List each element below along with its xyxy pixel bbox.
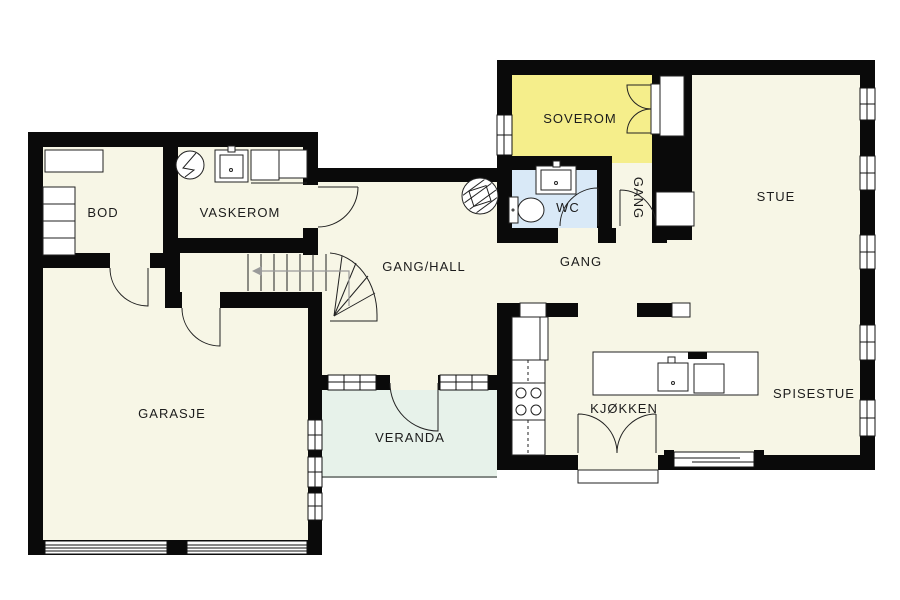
opening-veranda-door [390, 375, 438, 390]
label-garasje: GARASJE [138, 406, 206, 421]
window [497, 115, 512, 155]
window [664, 450, 764, 470]
label-gang-vertical: GANG [631, 177, 646, 219]
label-wc: WC [556, 200, 580, 215]
washer-dryer-icon [251, 150, 307, 183]
door-stoop [578, 470, 658, 483]
opening-bod-garage [110, 253, 150, 268]
cased-opening [672, 303, 690, 317]
closet-niche [660, 76, 684, 136]
label-kjokken: KJØKKEN [590, 401, 658, 416]
wc-sink-icon [536, 161, 576, 194]
label-gang-hall: GANG/HALL [382, 259, 465, 274]
stove-icon [512, 383, 545, 420]
window [308, 420, 322, 520]
label-veranda: VERANDA [375, 430, 445, 445]
cased-opening [520, 303, 546, 317]
label-spisestue: SPISESTUE [773, 386, 855, 401]
opening-wc-door [558, 228, 598, 243]
opening-terrace-doors [578, 455, 658, 470]
label-soverom: SOVEROM [543, 111, 616, 126]
label-stue: STUE [757, 189, 796, 204]
opening-vaskerom-hall [303, 185, 318, 228]
water-heater-icon [176, 151, 204, 179]
label-vaskerom: VASKEROM [200, 205, 281, 220]
floor-plan: BOD VASKEROM GANG/HALL SOVEROM WC GANG G… [0, 0, 900, 600]
label-gang: GANG [560, 254, 602, 269]
toilet-icon [509, 197, 544, 223]
opening-hall-garage [182, 292, 220, 308]
laundry-sink-icon [215, 146, 248, 182]
kitchen-island [593, 352, 758, 395]
label-bod: BOD [87, 205, 118, 220]
opening-corridor-door [616, 228, 652, 243]
hearth [656, 192, 694, 226]
